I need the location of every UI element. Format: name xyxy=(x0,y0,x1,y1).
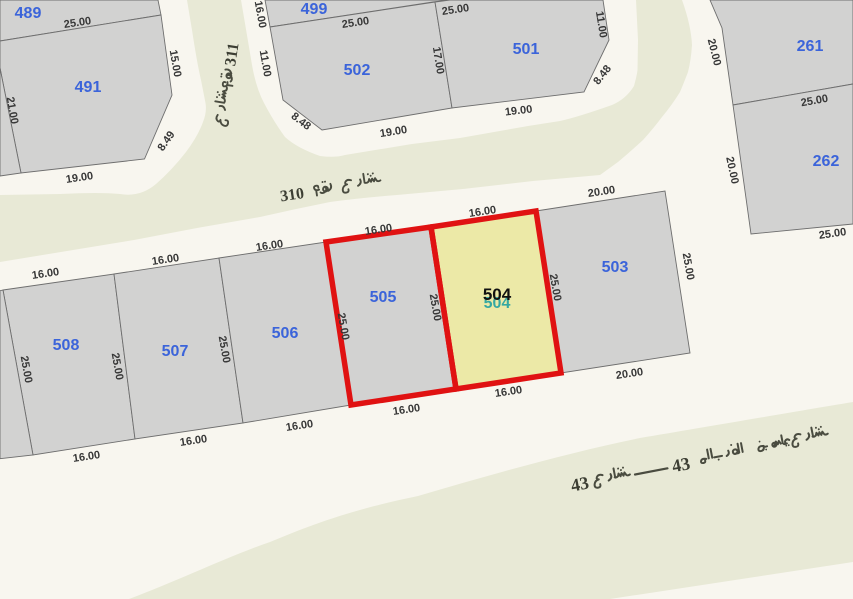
svg-text:491: 491 xyxy=(75,79,102,96)
svg-text:508: 508 xyxy=(53,337,80,354)
svg-text:261: 261 xyxy=(797,38,824,55)
svg-text:504: 504 xyxy=(483,285,512,304)
svg-text:501: 501 xyxy=(513,41,540,58)
svg-text:499: 499 xyxy=(301,1,328,18)
svg-text:489: 489 xyxy=(15,5,42,22)
svg-text:43: 43 xyxy=(670,453,691,476)
svg-text:43: 43 xyxy=(569,473,590,496)
svg-text:502: 502 xyxy=(344,62,371,79)
svg-text:310: 310 xyxy=(279,185,305,205)
svg-text:507: 507 xyxy=(162,343,189,360)
svg-text:505: 505 xyxy=(370,289,397,306)
svg-text:262: 262 xyxy=(813,153,840,170)
svg-text:503: 503 xyxy=(602,259,629,276)
svg-text:506: 506 xyxy=(272,325,299,342)
svg-text:311: 311 xyxy=(222,42,242,67)
